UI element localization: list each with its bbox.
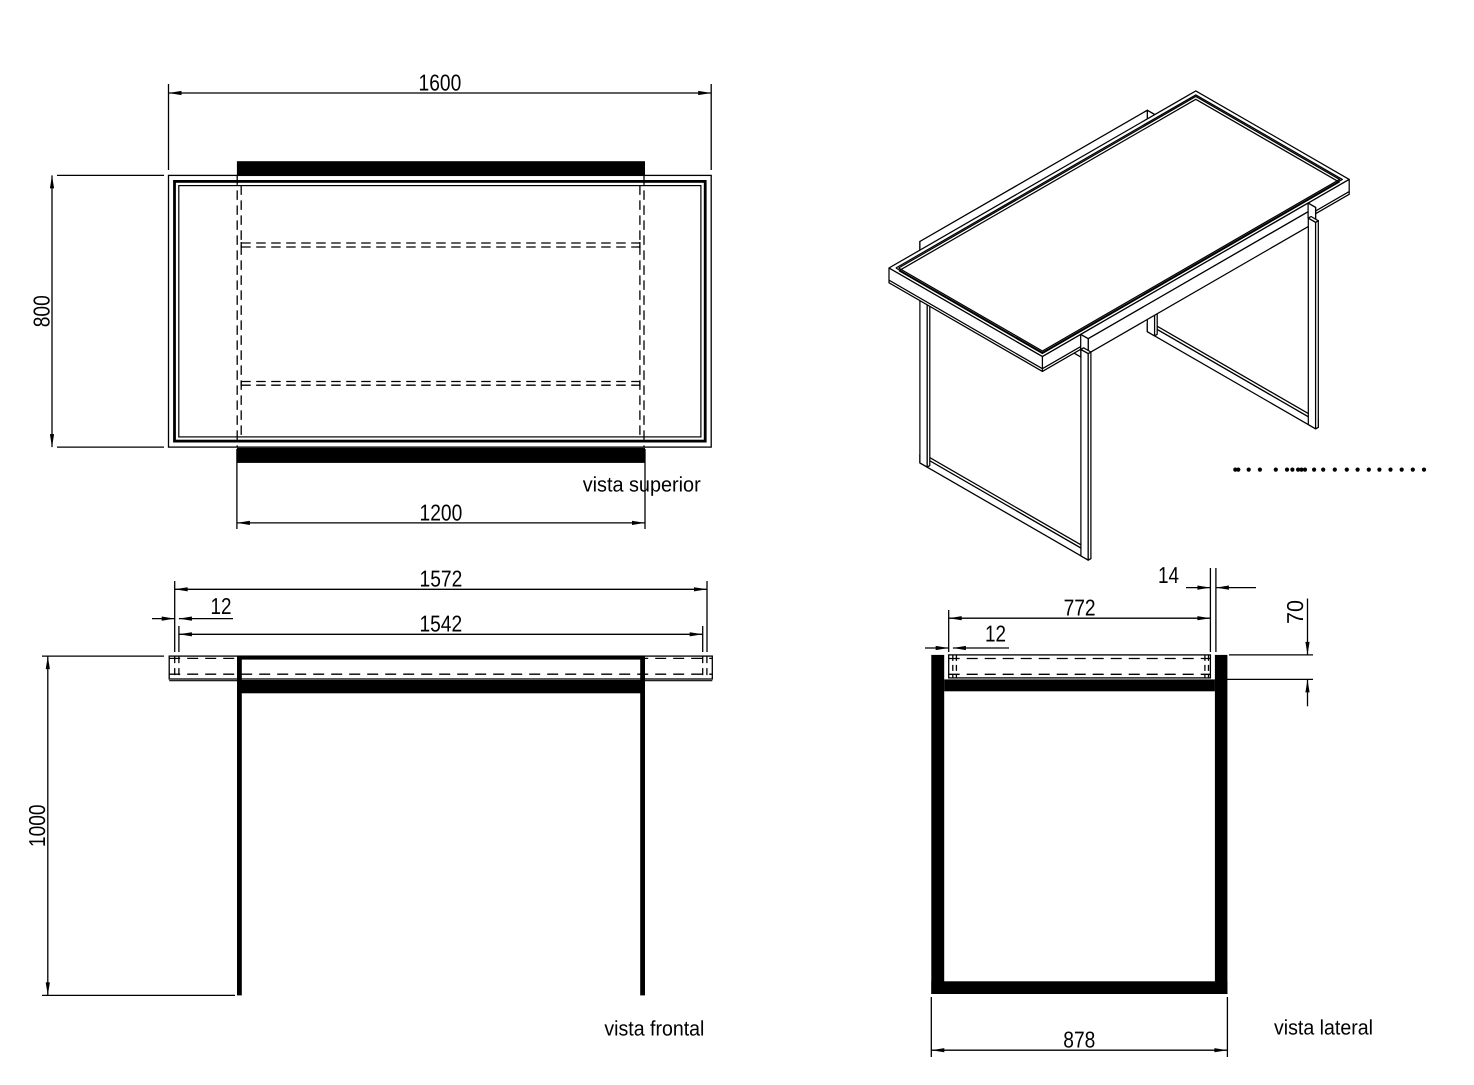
svg-text:12: 12: [985, 621, 1006, 647]
svg-text:14: 14: [1158, 562, 1179, 588]
svg-text:12: 12: [211, 593, 232, 619]
svg-text:vista lateral: vista lateral: [1274, 1017, 1373, 1040]
svg-text:vista superior: vista superior: [583, 474, 701, 497]
svg-text:772: 772: [1064, 595, 1096, 621]
svg-text:vista frontal: vista frontal: [604, 1018, 704, 1041]
svg-text:1000: 1000: [24, 804, 50, 847]
svg-text:1600: 1600: [419, 69, 462, 95]
svg-text:1200: 1200: [420, 499, 463, 525]
svg-text:1542: 1542: [419, 611, 462, 637]
svg-text:878: 878: [1063, 1027, 1095, 1053]
svg-text:70: 70: [1282, 600, 1308, 624]
svg-text:800: 800: [28, 295, 54, 327]
svg-text:1572: 1572: [420, 566, 463, 592]
